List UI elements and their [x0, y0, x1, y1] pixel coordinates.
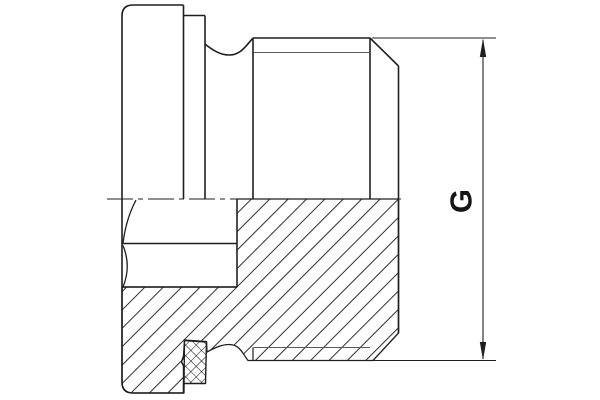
technical-drawing: G	[0, 0, 600, 400]
drawing-canvas: G	[0, 0, 600, 400]
seal-ring	[182, 341, 207, 384]
dimension-label: G	[444, 189, 479, 213]
